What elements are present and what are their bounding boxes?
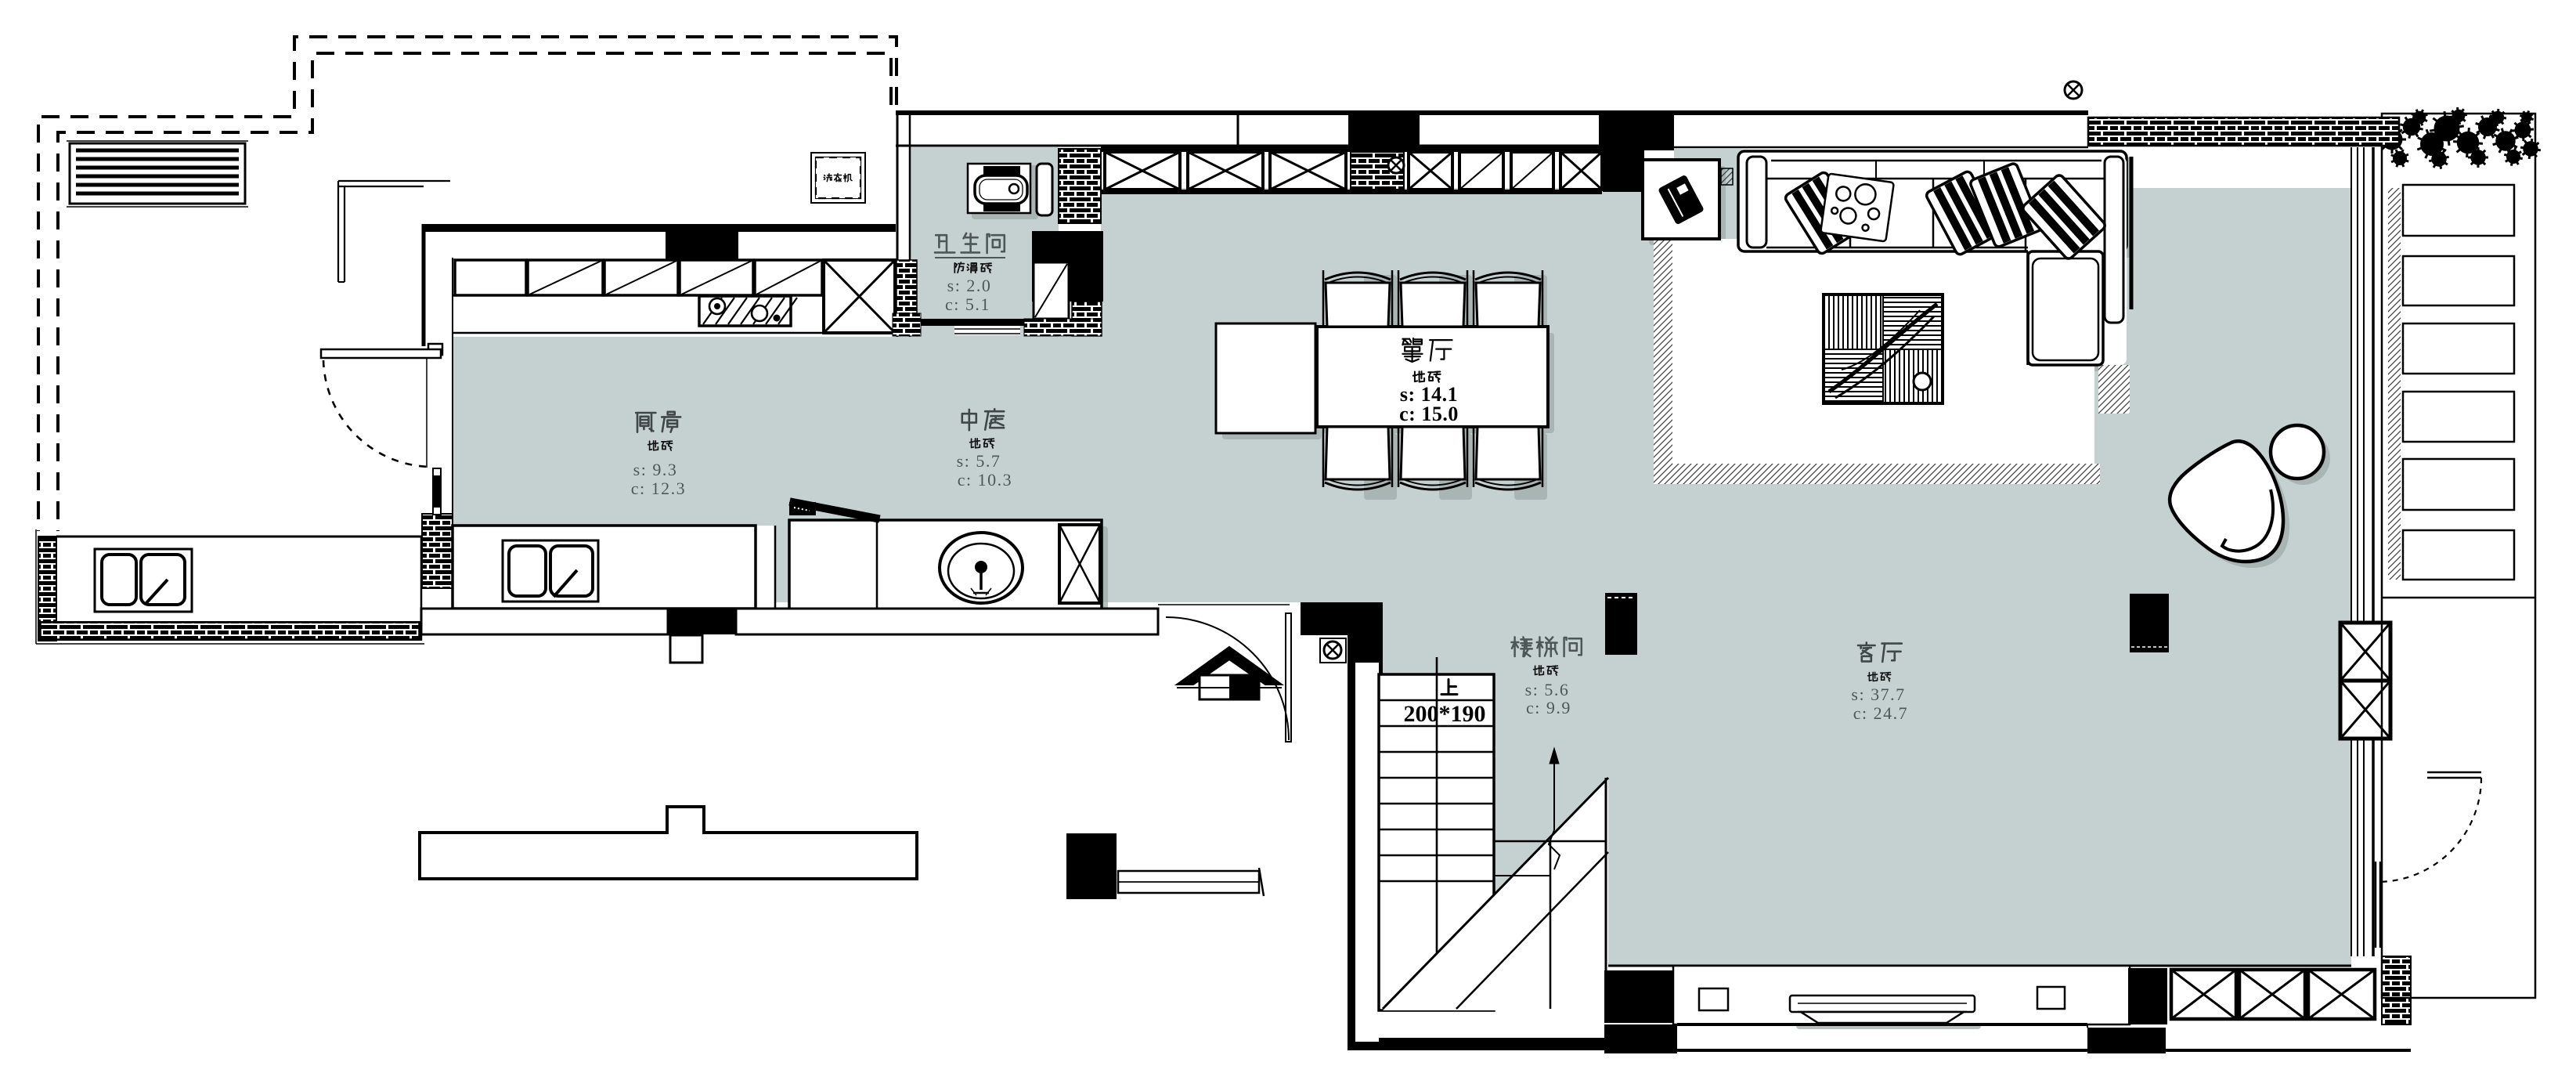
svg-text:c: 5.1: c: 5.1 bbox=[945, 294, 990, 314]
svg-text:s: 5.7: s: 5.7 bbox=[957, 451, 1001, 471]
svg-text:c: 10.3: c: 10.3 bbox=[958, 470, 1012, 490]
svg-text:s: 5.6: s: 5.6 bbox=[1525, 680, 1570, 699]
svg-text:c: 15.0: c: 15.0 bbox=[1399, 403, 1459, 425]
svg-text:c: 24.7: c: 24.7 bbox=[1853, 703, 1908, 723]
svg-text:c: 9.9: c: 9.9 bbox=[1526, 698, 1571, 717]
svg-text:s: 9.3: s: 9.3 bbox=[633, 460, 678, 479]
svg-text:s: 2.0: s: 2.0 bbox=[947, 276, 992, 295]
svg-text:200*190: 200*190 bbox=[1404, 701, 1486, 727]
svg-text:s: 37.7: s: 37.7 bbox=[1851, 685, 1905, 704]
svg-text:c: 12.3: c: 12.3 bbox=[631, 479, 686, 498]
